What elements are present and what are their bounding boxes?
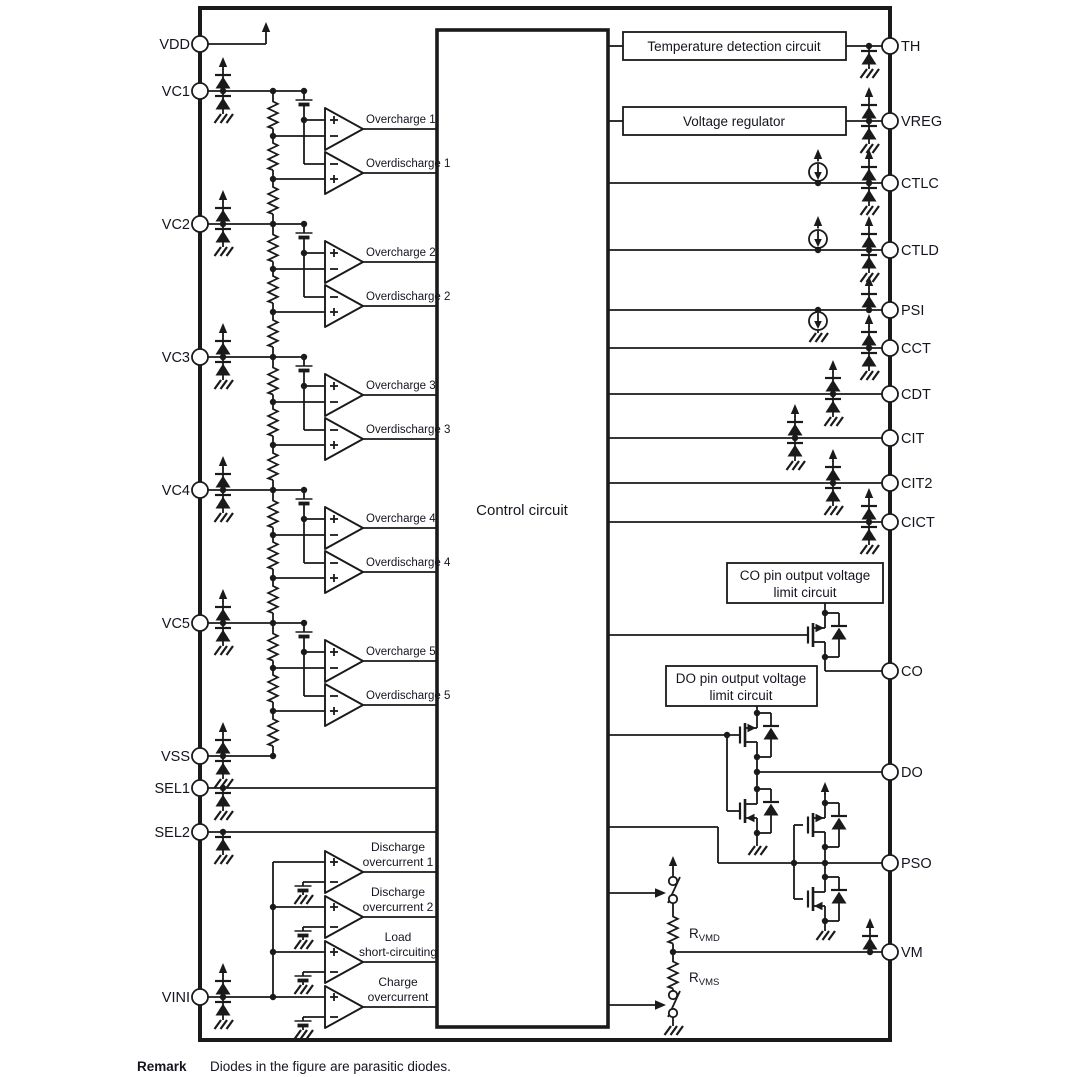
- overcharge-5-label: Overcharge 5: [366, 646, 436, 658]
- ctlc-net: [608, 149, 882, 215]
- rvms-label: RVMS: [689, 970, 719, 988]
- comparator-references: [295, 882, 326, 1039]
- pin-cit: CIT: [882, 430, 925, 447]
- pin-vc5-label: VC5: [162, 616, 190, 632]
- charge-overcurrent-label-2: overcurrent: [368, 990, 429, 1004]
- pin-cit2-label: CIT2: [901, 476, 932, 492]
- pin-psi: PSI: [882, 302, 924, 319]
- pin-ctlc: CTLC: [882, 175, 939, 192]
- ctld-net: [608, 216, 882, 282]
- cdt-net: [608, 360, 882, 426]
- pin-psi-label: PSI: [901, 303, 924, 319]
- remark-text: Diodes in the figure are parasitic diode…: [210, 1059, 451, 1074]
- pso-high-mosfet: [808, 800, 847, 850]
- current-comparators: Discharge overcurrent 1 Discharge overcu…: [270, 840, 437, 1039]
- pin-sel1-label: SEL1: [155, 781, 190, 797]
- cit-net: [608, 404, 882, 470]
- pin-vdd: VDD: [159, 36, 208, 53]
- pin-sel2-label: SEL2: [155, 825, 190, 841]
- pin-vm: VM: [882, 944, 923, 961]
- discharge-overcurrent1-label-2: overcurrent 1: [363, 855, 434, 869]
- pin-vss-label: VSS: [161, 749, 190, 765]
- pin-vc3: VC3: [162, 349, 208, 366]
- pin-do: DO: [882, 764, 923, 781]
- sel1-net: [207, 785, 437, 820]
- psi-net: [608, 276, 882, 342]
- co-mosfet: [808, 610, 847, 660]
- overdischarge-2-label: Overdischarge 2: [366, 291, 450, 303]
- pin-cict-label: CICT: [901, 515, 935, 531]
- pin-vc4: VC4: [162, 482, 208, 499]
- rvms-switch: [668, 991, 680, 1017]
- co-driver: CO pin output voltage limit circuit: [608, 563, 883, 671]
- overdischarge-3-label: Overdischarge 3: [366, 424, 450, 436]
- pin-vdd-label: VDD: [159, 37, 190, 53]
- pin-co-label: CO: [901, 664, 923, 680]
- pin-cict: CICT: [882, 514, 935, 531]
- discharge-overcurrent1-label-1: Discharge: [371, 840, 425, 854]
- vm-network: RVMD RVMS: [608, 856, 882, 1035]
- pin-ctld-label: CTLD: [901, 243, 939, 259]
- overcharge-3-label: Overcharge 3: [366, 380, 436, 392]
- pin-th-label: TH: [901, 39, 920, 55]
- pin-pso-label: PSO: [901, 856, 932, 872]
- overdischarge-4-label: Overdischarge 4: [366, 557, 451, 569]
- overcharge-1-label: Overcharge 1: [366, 114, 436, 126]
- discharge-overcurrent2-label-2: overcurrent 2: [363, 900, 434, 914]
- pso-low-mosfet: [808, 874, 847, 924]
- pin-ctld: CTLD: [882, 242, 939, 259]
- do-low-mosfet: [740, 786, 779, 836]
- pin-vreg-label: VREG: [901, 114, 942, 130]
- pin-cdt-label: CDT: [901, 387, 931, 403]
- control-circuit-block: Control circuit: [437, 30, 608, 1027]
- vdd-net: [207, 22, 270, 44]
- vss-net: [207, 722, 276, 788]
- pin-vm-label: VM: [901, 945, 923, 961]
- co-limit-label-1: CO pin output voltage: [740, 568, 871, 583]
- pin-do-label: DO: [901, 765, 923, 781]
- pin-vini: VINI: [162, 989, 208, 1006]
- vini-net: [207, 963, 325, 1029]
- pin-ctlc-label: CTLC: [901, 176, 939, 192]
- pin-vc2-label: VC2: [162, 217, 190, 233]
- cict-net: [608, 488, 882, 554]
- pin-vss: VSS: [161, 748, 208, 765]
- pin-th: TH: [882, 38, 920, 55]
- pin-cdt: CDT: [882, 386, 931, 403]
- temperature-detection-label: Temperature detection circuit: [647, 39, 821, 54]
- pin-cct-label: CCT: [901, 341, 931, 357]
- do-limit-label-1: DO pin output voltage: [676, 671, 807, 686]
- pin-vreg: VREG: [882, 113, 942, 130]
- pin-vc3-label: VC3: [162, 350, 190, 366]
- overdischarge-1-label: Overdischarge 1: [366, 158, 450, 170]
- voltage-regulator-label: Voltage regulator: [683, 114, 786, 129]
- vreg-net: Voltage regulator: [608, 87, 882, 153]
- co-limit-label-2: limit circuit: [774, 585, 837, 600]
- pin-cct: CCT: [882, 340, 931, 357]
- pin-vc1: VC1: [162, 83, 208, 100]
- pin-cit-label: CIT: [901, 431, 925, 447]
- pin-co: CO: [882, 663, 923, 680]
- do-limit-label-2: limit circuit: [710, 688, 773, 703]
- load-short-label-1: Load: [385, 930, 412, 944]
- discharge-overcurrent2-label-1: Discharge: [371, 885, 425, 899]
- cit2-net: [608, 449, 882, 515]
- rvmd-resistor: [668, 915, 678, 944]
- remark: Remark Diodes in the figure are parasiti…: [137, 1059, 451, 1074]
- pin-vini-label: VINI: [162, 990, 190, 1006]
- pin-vc1-label: VC1: [162, 84, 190, 100]
- pin-cit2: CIT2: [882, 475, 932, 492]
- block-diagram-page: Control circuit Overcharge 1 Overdischar…: [0, 0, 1080, 1077]
- pin-sel1: SEL1: [155, 780, 208, 797]
- pin-pso: PSO: [882, 855, 932, 872]
- pin-vc5: VC5: [162, 615, 208, 632]
- rvms-resistor: [668, 960, 678, 989]
- rvmd-switch: [668, 877, 680, 903]
- pin-vc4-label: VC4: [162, 483, 190, 499]
- charge-overcurrent-label-1: Charge: [378, 975, 418, 989]
- overcharge-4-label: Overcharge 4: [366, 513, 436, 525]
- do-high-mosfet: [740, 710, 779, 760]
- pin-vc2: VC2: [162, 216, 208, 233]
- overdischarge-5-label: Overdischarge 5: [366, 690, 450, 702]
- control-circuit-label: Control circuit: [476, 502, 569, 519]
- cct-net: [608, 314, 882, 380]
- overcharge-2-label: Overcharge 2: [366, 247, 436, 259]
- pin-sel2: SEL2: [155, 824, 208, 841]
- load-short-label-2: short-circuiting: [359, 945, 437, 959]
- th-net: Temperature detection circuit: [608, 32, 882, 78]
- remark-label: Remark: [137, 1059, 187, 1074]
- control-circuit-box: [437, 30, 608, 1027]
- ic-block-diagram: Control circuit Overcharge 1 Overdischar…: [0, 0, 1080, 1077]
- rvmd-label: RVMD: [689, 926, 720, 944]
- cell-monitors: Overcharge 1 Overdischarge 1 Overcharge …: [207, 57, 451, 756]
